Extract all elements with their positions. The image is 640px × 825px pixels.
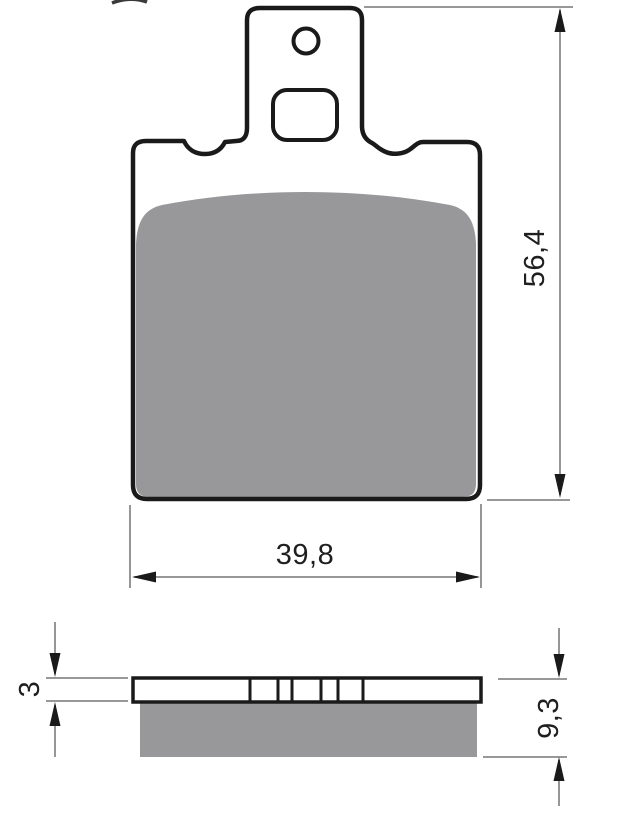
arrowhead xyxy=(50,702,61,726)
dim-backing-thickness xyxy=(46,622,128,757)
round-hole xyxy=(294,29,319,54)
square-hole xyxy=(273,90,337,140)
diagram-canvas: 39,8 56,4 3 9,3 xyxy=(0,0,640,825)
total-thickness-label: 9,3 xyxy=(534,678,564,758)
pad-side-view xyxy=(133,678,481,757)
pad-front-view xyxy=(133,8,480,499)
backing-thickness-label: 3 xyxy=(15,659,45,719)
arrowhead xyxy=(554,757,565,781)
arrowhead xyxy=(50,653,61,677)
arrowhead xyxy=(555,474,566,498)
friction-surface xyxy=(136,192,476,497)
cropped-text-artifact xyxy=(112,0,147,3)
width-dimension-label: 39,8 xyxy=(235,540,375,572)
height-dimension-label: 56,4 xyxy=(520,198,552,318)
arrowhead xyxy=(554,654,565,678)
backing-plate xyxy=(133,678,481,702)
friction-layer xyxy=(140,700,477,757)
arrowhead xyxy=(132,572,156,583)
arrowhead xyxy=(456,572,480,583)
arrowhead xyxy=(555,8,566,32)
